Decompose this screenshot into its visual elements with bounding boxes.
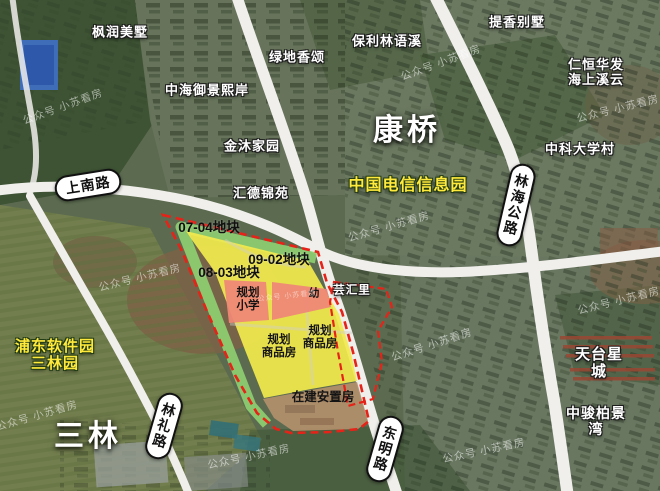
satellite-background [0, 0, 660, 491]
map-canvas[interactable]: 康桥 三林 枫润美墅 绿地香颂 保利林语溪 提香别墅 仁恒华发 海上溪云 中海御… [0, 0, 660, 491]
